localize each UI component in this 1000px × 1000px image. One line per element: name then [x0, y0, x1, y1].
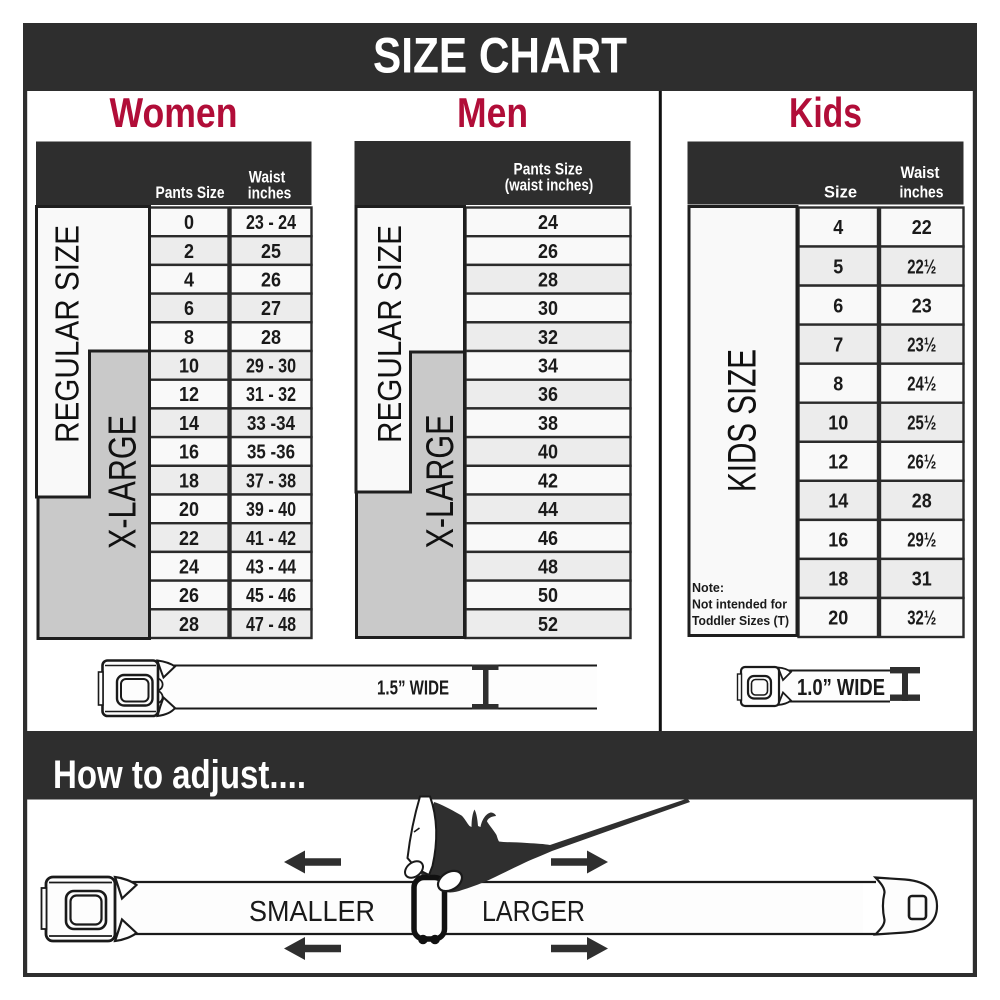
svg-text:38: 38: [538, 413, 558, 435]
svg-text:14: 14: [179, 413, 200, 435]
svg-text:23 - 24: 23 - 24: [246, 212, 297, 234]
svg-text:20: 20: [179, 499, 199, 521]
svg-text:Pants Size: Pants Size: [156, 184, 225, 202]
svg-text:44: 44: [538, 499, 559, 521]
svg-text:REGULAR SIZE: REGULAR SIZE: [371, 225, 408, 443]
svg-text:KIDS SIZE: KIDS SIZE: [720, 349, 764, 492]
svg-text:23: 23: [912, 295, 932, 317]
svg-text:27: 27: [261, 298, 281, 320]
svg-text:LARGER: LARGER: [482, 896, 585, 928]
svg-text:inches: inches: [248, 185, 292, 203]
svg-text:24: 24: [538, 212, 559, 234]
svg-text:6: 6: [833, 295, 843, 317]
svg-text:12: 12: [828, 452, 848, 474]
svg-text:29 - 30: 29 - 30: [246, 356, 296, 378]
svg-text:20: 20: [828, 608, 848, 630]
svg-text:31: 31: [912, 569, 932, 591]
svg-text:41 - 42: 41 - 42: [246, 528, 296, 550]
svg-text:32: 32: [538, 327, 558, 349]
svg-text:24: 24: [179, 557, 200, 579]
svg-text:26: 26: [261, 269, 281, 291]
svg-text:Size: Size: [824, 184, 857, 202]
svg-text:24½: 24½: [907, 373, 936, 395]
svg-text:inches: inches: [900, 184, 944, 202]
svg-text:35 -36: 35 -36: [247, 442, 295, 464]
svg-text:16: 16: [179, 442, 199, 464]
svg-text:12: 12: [179, 384, 199, 406]
svg-text:SMALLER: SMALLER: [249, 896, 375, 928]
svg-text:22: 22: [179, 528, 199, 550]
svg-text:34: 34: [538, 356, 559, 378]
svg-text:50: 50: [538, 585, 558, 607]
svg-text:0: 0: [184, 212, 194, 234]
svg-text:28: 28: [261, 327, 281, 349]
svg-text:16: 16: [828, 530, 848, 552]
svg-text:48: 48: [538, 557, 558, 579]
svg-text:46: 46: [538, 528, 558, 550]
svg-text:Women: Women: [110, 89, 238, 136]
svg-text:30: 30: [538, 298, 558, 320]
svg-text:(waist inches): (waist inches): [505, 177, 594, 195]
svg-text:1.5” WIDE: 1.5” WIDE: [377, 678, 449, 700]
svg-text:1.0” WIDE: 1.0” WIDE: [797, 674, 885, 700]
svg-text:REGULAR SIZE: REGULAR SIZE: [49, 225, 86, 443]
svg-text:4: 4: [833, 217, 844, 239]
svg-text:Not intended for: Not intended for: [692, 597, 787, 612]
svg-text:18: 18: [828, 569, 848, 591]
svg-text:Waist: Waist: [901, 164, 940, 182]
svg-text:31 - 32: 31 - 32: [246, 384, 296, 406]
svg-text:Kids: Kids: [789, 89, 862, 136]
svg-text:10: 10: [179, 356, 199, 378]
svg-text:39 - 40: 39 - 40: [246, 499, 296, 521]
svg-text:25: 25: [261, 241, 281, 263]
svg-text:How to adjust....: How to adjust....: [53, 753, 306, 797]
svg-text:6: 6: [184, 298, 194, 320]
svg-text:37 - 38: 37 - 38: [246, 470, 296, 492]
svg-text:Men: Men: [457, 89, 528, 136]
svg-text:28: 28: [538, 269, 558, 291]
svg-text:26½: 26½: [907, 452, 936, 474]
svg-text:8: 8: [833, 373, 843, 395]
svg-text:10: 10: [828, 412, 848, 434]
svg-text:32½: 32½: [907, 608, 936, 630]
svg-text:29½: 29½: [907, 530, 936, 552]
svg-text:22: 22: [912, 217, 932, 239]
svg-text:7: 7: [833, 334, 843, 356]
svg-text:33 -34: 33 -34: [247, 413, 296, 435]
svg-text:42: 42: [538, 470, 558, 492]
svg-text:26: 26: [179, 585, 199, 607]
svg-text:36: 36: [538, 384, 558, 406]
svg-text:25½: 25½: [907, 412, 936, 434]
svg-text:2: 2: [184, 241, 194, 263]
svg-text:45 - 46: 45 - 46: [246, 585, 296, 607]
svg-text:40: 40: [538, 442, 558, 464]
svg-text:22½: 22½: [907, 256, 936, 278]
svg-text:Note:: Note:: [692, 580, 724, 595]
svg-text:23½: 23½: [907, 334, 936, 356]
svg-text:18: 18: [179, 470, 199, 492]
svg-text:X-LARGE: X-LARGE: [102, 415, 145, 549]
svg-text:Toddler Sizes (T): Toddler Sizes (T): [692, 613, 789, 628]
svg-text:28: 28: [912, 491, 932, 513]
svg-text:26: 26: [538, 241, 558, 263]
svg-text:5: 5: [833, 256, 843, 278]
svg-text:14: 14: [828, 491, 849, 513]
svg-text:X-LARGE: X-LARGE: [419, 415, 462, 549]
svg-text:47 - 48: 47 - 48: [246, 614, 296, 636]
svg-text:43 - 44: 43 - 44: [246, 557, 297, 579]
svg-text:28: 28: [179, 614, 199, 636]
svg-text:52: 52: [538, 614, 558, 636]
svg-text:4: 4: [184, 269, 195, 291]
svg-text:8: 8: [184, 327, 194, 349]
svg-text:SIZE CHART: SIZE CHART: [373, 28, 627, 84]
